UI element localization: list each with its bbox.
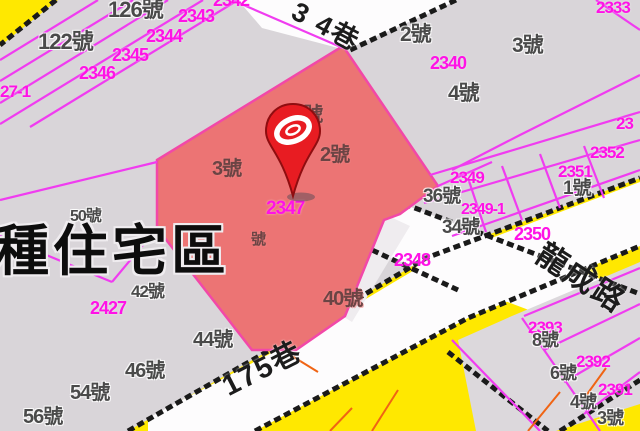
house-number-34號: 34號 [442,218,479,237]
parcel-number-2346: 2346 [79,64,115,82]
parcel-number-2345: 2345 [112,46,148,64]
house-number-122號: 122號 [38,31,93,53]
house-number-42號: 42號 [131,283,164,300]
house-number-3號: 3號 [512,35,543,56]
house-number-8號: 8號 [532,331,558,349]
parcel-number-23: 23 [616,115,633,132]
map-pin-icon [263,100,325,202]
house-number-3號: 3號 [597,409,623,427]
house-number-6號: 6號 [550,364,576,382]
house-number-號: 號 [251,232,265,247]
zone-label: 種住宅區 [0,224,230,279]
parcel-number-27-1: 27-1 [0,83,30,100]
house-number-56號: 56號 [23,407,62,427]
parcel-number-2344: 2344 [146,27,182,45]
house-number-4號: 4號 [570,393,596,411]
house-number-44號: 44號 [193,330,232,350]
cadastral-map[interactable]: 23422343234423452346233327-1234023235223… [0,0,640,431]
parcel-number-2349-1: 2349-1 [461,202,505,218]
parcel-number-2342: 2342 [213,0,249,9]
parcel-number-2350: 2350 [514,225,550,243]
house-number-126號: 126號 [108,0,163,21]
house-number-46號: 46號 [125,361,164,381]
house-number-36號: 36號 [423,187,460,206]
parcel-number-2392: 2392 [576,353,610,370]
parcel-number-2348: 2348 [394,251,430,269]
map-pin[interactable] [263,100,325,202]
house-number-54號: 54號 [70,383,109,403]
house-number-3號: 3號 [212,159,241,179]
parcel-number-2427: 2427 [90,299,126,317]
parcel-number-2352: 2352 [590,144,624,161]
parcel-number-2391: 2391 [598,381,632,398]
house-number-4號: 4號 [448,83,479,104]
house-number-40號: 40號 [323,289,362,309]
parcel-number-2333: 2333 [596,0,630,16]
house-number-1號: 1號 [563,179,591,198]
parcel-number-2340: 2340 [430,54,466,72]
house-number-2號: 2號 [400,24,431,45]
parcel-number-2343: 2343 [178,7,214,25]
parcel-number-2349: 2349 [450,169,484,186]
